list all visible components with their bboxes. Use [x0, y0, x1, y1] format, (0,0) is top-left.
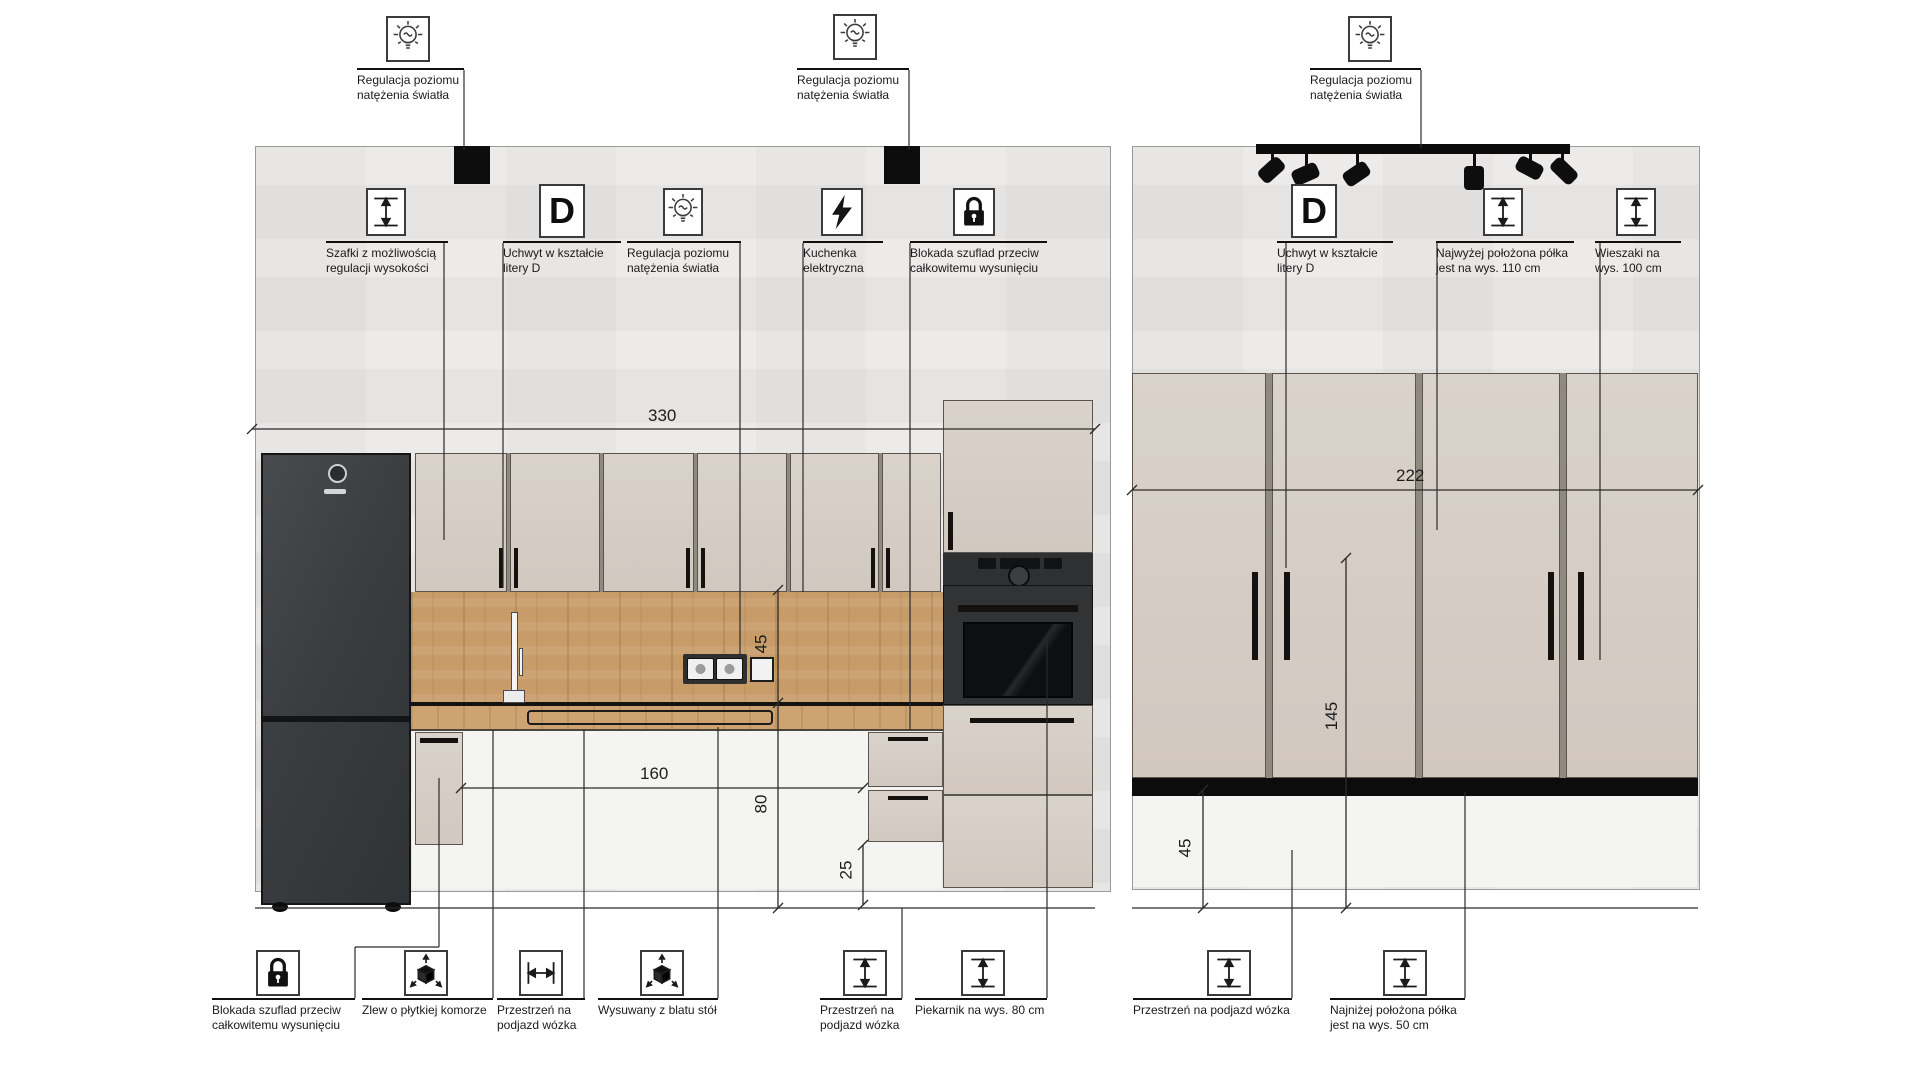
annotation-label: Szafki z możliwością regulacji wysokości: [326, 246, 436, 275]
annotation-label: Regulacja poziomu natężenia światła: [797, 73, 899, 102]
annotation-wheelchair-clearance: Przestrzeń na podjazd wózka: [1133, 998, 1292, 1018]
annotation-highest-shelf: Najwyżej położona półka jest na wys. 110…: [1436, 241, 1574, 275]
annotation-label: Regulacja poziomu natężenia światła: [627, 246, 729, 275]
annotation-label: Wysuwany z blatu stół: [598, 1003, 717, 1017]
annotation-d-handle: Uchwyt w kształcie litery D: [503, 241, 621, 275]
height-adjust-icon: [366, 188, 406, 236]
annotation-label: Przestrzeń na podjazd wózka: [820, 1003, 899, 1032]
dimension-label: 45: [1175, 839, 1195, 858]
d-handle-icon: D: [539, 184, 585, 238]
dimension-label: 145: [1322, 702, 1342, 730]
annotation-light-regulation: Regulacja poziomu natężenia światła: [797, 68, 909, 102]
cube-arrows-icon: [404, 950, 448, 996]
annotation-electric-cooker: Kuchenka elektryczna: [803, 241, 883, 275]
bulb-icon: [833, 14, 877, 60]
annotation-pullout-table: Wysuwany z blatu stół: [598, 998, 718, 1018]
bulb-icon: [1348, 16, 1392, 62]
annotation-drawer-lock: Blokada szuflad przeciw całkowitemu wysu…: [910, 241, 1047, 275]
annotation-label: Wieszaki na wys. 100 cm: [1595, 246, 1662, 275]
dimension-label: 45: [751, 635, 771, 654]
annotation-label: Kuchenka elektryczna: [803, 246, 864, 275]
annotation-label: Regulacja poziomu natężenia światła: [357, 73, 459, 102]
d-handle-icon: D: [1291, 184, 1337, 238]
height-adjust-icon: [1207, 950, 1251, 996]
annotation-drawer-lock: Blokada szuflad przeciw całkowitemu wysu…: [212, 998, 355, 1032]
annotation-light-regulation: Regulacja poziomu natężenia światła: [357, 68, 464, 102]
lock-icon: [256, 950, 300, 996]
lightning-icon: [821, 188, 863, 236]
height-adjust-icon: [843, 950, 887, 996]
annotation-label: Uchwyt w kształcie litery D: [503, 246, 604, 275]
dimension-label: 160: [640, 764, 668, 784]
annotation-shallow-sink: Zlew o płytkiej komorze: [362, 998, 493, 1018]
annotation-wheelchair-clearance: Przestrzeń na podjazd wózka: [820, 998, 902, 1032]
annotation-label: Blokada szuflad przeciw całkowitemu wysu…: [910, 246, 1039, 275]
annotation-oven-height: Piekarnik na wys. 80 cm: [915, 998, 1047, 1018]
annotation-wheelchair-clearance: Przestrzeń na podjazd wózka: [497, 998, 585, 1032]
lock-icon: [953, 188, 995, 236]
bulb-icon: [663, 188, 703, 236]
width-adjust-icon: [519, 950, 563, 996]
annotation-label: Przestrzeń na podjazd wózka: [1133, 1003, 1290, 1017]
annotation-label: Zlew o płytkiej komorze: [362, 1003, 487, 1017]
dimension-label: 25: [836, 861, 856, 880]
dimension-label: 80: [751, 795, 771, 814]
height-adjust-icon: [961, 950, 1005, 996]
annotation-hangers: Wieszaki na wys. 100 cm: [1595, 241, 1681, 275]
height-adjust-icon: [1383, 950, 1427, 996]
annotation-label: Regulacja poziomu natężenia światła: [1310, 73, 1412, 102]
bulb-icon: [386, 16, 430, 62]
annotation-label: Najniżej położona półka jest na wys. 50 …: [1330, 1003, 1457, 1032]
annotation-adjustable-cabinets: Szafki z możliwością regulacji wysokości: [326, 241, 448, 275]
dimension-label: 330: [648, 406, 676, 426]
annotation-label: Przestrzeń na podjazd wózka: [497, 1003, 576, 1032]
annotation-light-regulation: Regulacja poziomu natężenia światła: [1310, 68, 1421, 102]
annotation-label: Uchwyt w kształcie litery D: [1277, 246, 1378, 275]
annotation-d-handle: Uchwyt w kształcie litery D: [1277, 241, 1393, 275]
dimension-lines: [0, 0, 1920, 1080]
annotation-lowest-shelf: Najniżej położona półka jest na wys. 50 …: [1330, 998, 1465, 1032]
annotation-label: Najwyżej położona półka jest na wys. 110…: [1436, 246, 1568, 275]
dimension-label: 222: [1396, 466, 1424, 486]
height-adjust-icon: [1483, 188, 1523, 236]
height-adjust-icon: [1616, 188, 1656, 236]
annotation-light-regulation: Regulacja poziomu natężenia światła: [627, 241, 741, 275]
annotation-label: Blokada szuflad przeciw całkowitemu wysu…: [212, 1003, 341, 1032]
cube-arrows-icon: [640, 950, 684, 996]
kitchen-elevation-drawing: 330 160 45 80 25 222 145 45 Regulacja po…: [0, 0, 1920, 1080]
annotation-label: Piekarnik na wys. 80 cm: [915, 1003, 1044, 1017]
